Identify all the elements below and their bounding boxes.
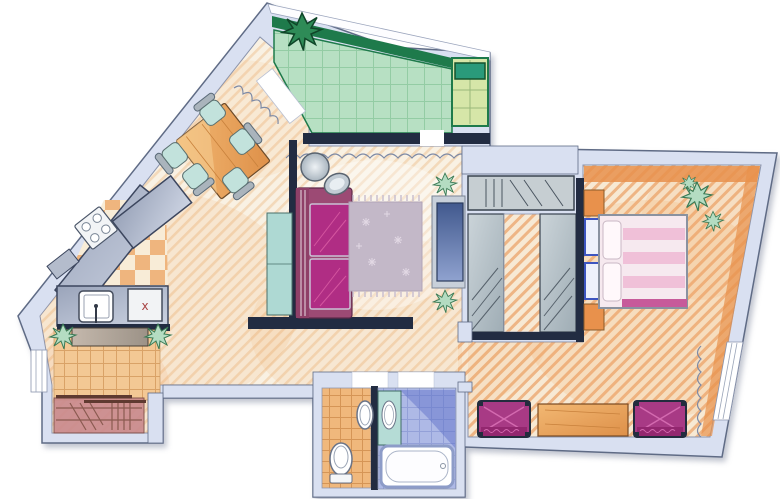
floor-plan-canvas: x <box>0 0 780 499</box>
bathroom-block <box>313 372 465 497</box>
floor-plan-drawing: x <box>0 0 780 499</box>
wardrobe-top-panel <box>468 176 574 210</box>
appliance-x: x <box>128 289 162 321</box>
wc-bath-divider <box>371 386 378 490</box>
hall-bench <box>72 328 148 346</box>
appliance-x-label: x <box>141 299 148 313</box>
area-rug <box>349 195 422 297</box>
hallway-bottom-wall <box>163 385 313 398</box>
desk <box>538 404 628 436</box>
sofa <box>296 188 352 318</box>
window-left <box>31 350 47 392</box>
entrance-closet <box>54 395 146 433</box>
pillow <box>603 221 621 259</box>
balcony-side-table <box>455 63 485 79</box>
wardrobe-base <box>468 332 576 340</box>
armchair <box>634 401 686 437</box>
entrance-right-wall <box>148 393 163 443</box>
bathtub <box>381 446 453 487</box>
corner-cabinet <box>584 190 604 216</box>
wc-door-gap <box>352 372 388 388</box>
bed-footer <box>622 299 687 307</box>
bedroom-wall <box>576 178 584 342</box>
wall-stub <box>458 322 472 342</box>
tv-unit <box>432 196 465 288</box>
wall-stub <box>458 382 472 392</box>
nightstand <box>585 263 600 299</box>
kitchen-sink <box>79 291 113 323</box>
bedroom-floor-border-top <box>584 166 760 182</box>
sofa-cushion <box>310 259 350 309</box>
half-wall <box>248 317 413 329</box>
vanity <box>378 391 401 445</box>
toilet <box>330 443 352 483</box>
sofa-cushion <box>310 204 350 256</box>
balcony-door-gap <box>420 130 444 146</box>
pillow <box>603 263 621 301</box>
armchair <box>478 401 530 437</box>
tv-screen <box>437 203 463 281</box>
bath-door-gap <box>398 372 434 388</box>
wardrobe-passage <box>504 214 540 332</box>
wardrobe-top-wall <box>462 146 578 174</box>
walk-through-wardrobe <box>458 146 584 342</box>
balcony-window-wall <box>303 133 490 144</box>
wc-sink <box>357 401 373 429</box>
hallway-walls <box>148 385 313 443</box>
nightstand <box>585 219 600 255</box>
bed <box>599 215 687 308</box>
